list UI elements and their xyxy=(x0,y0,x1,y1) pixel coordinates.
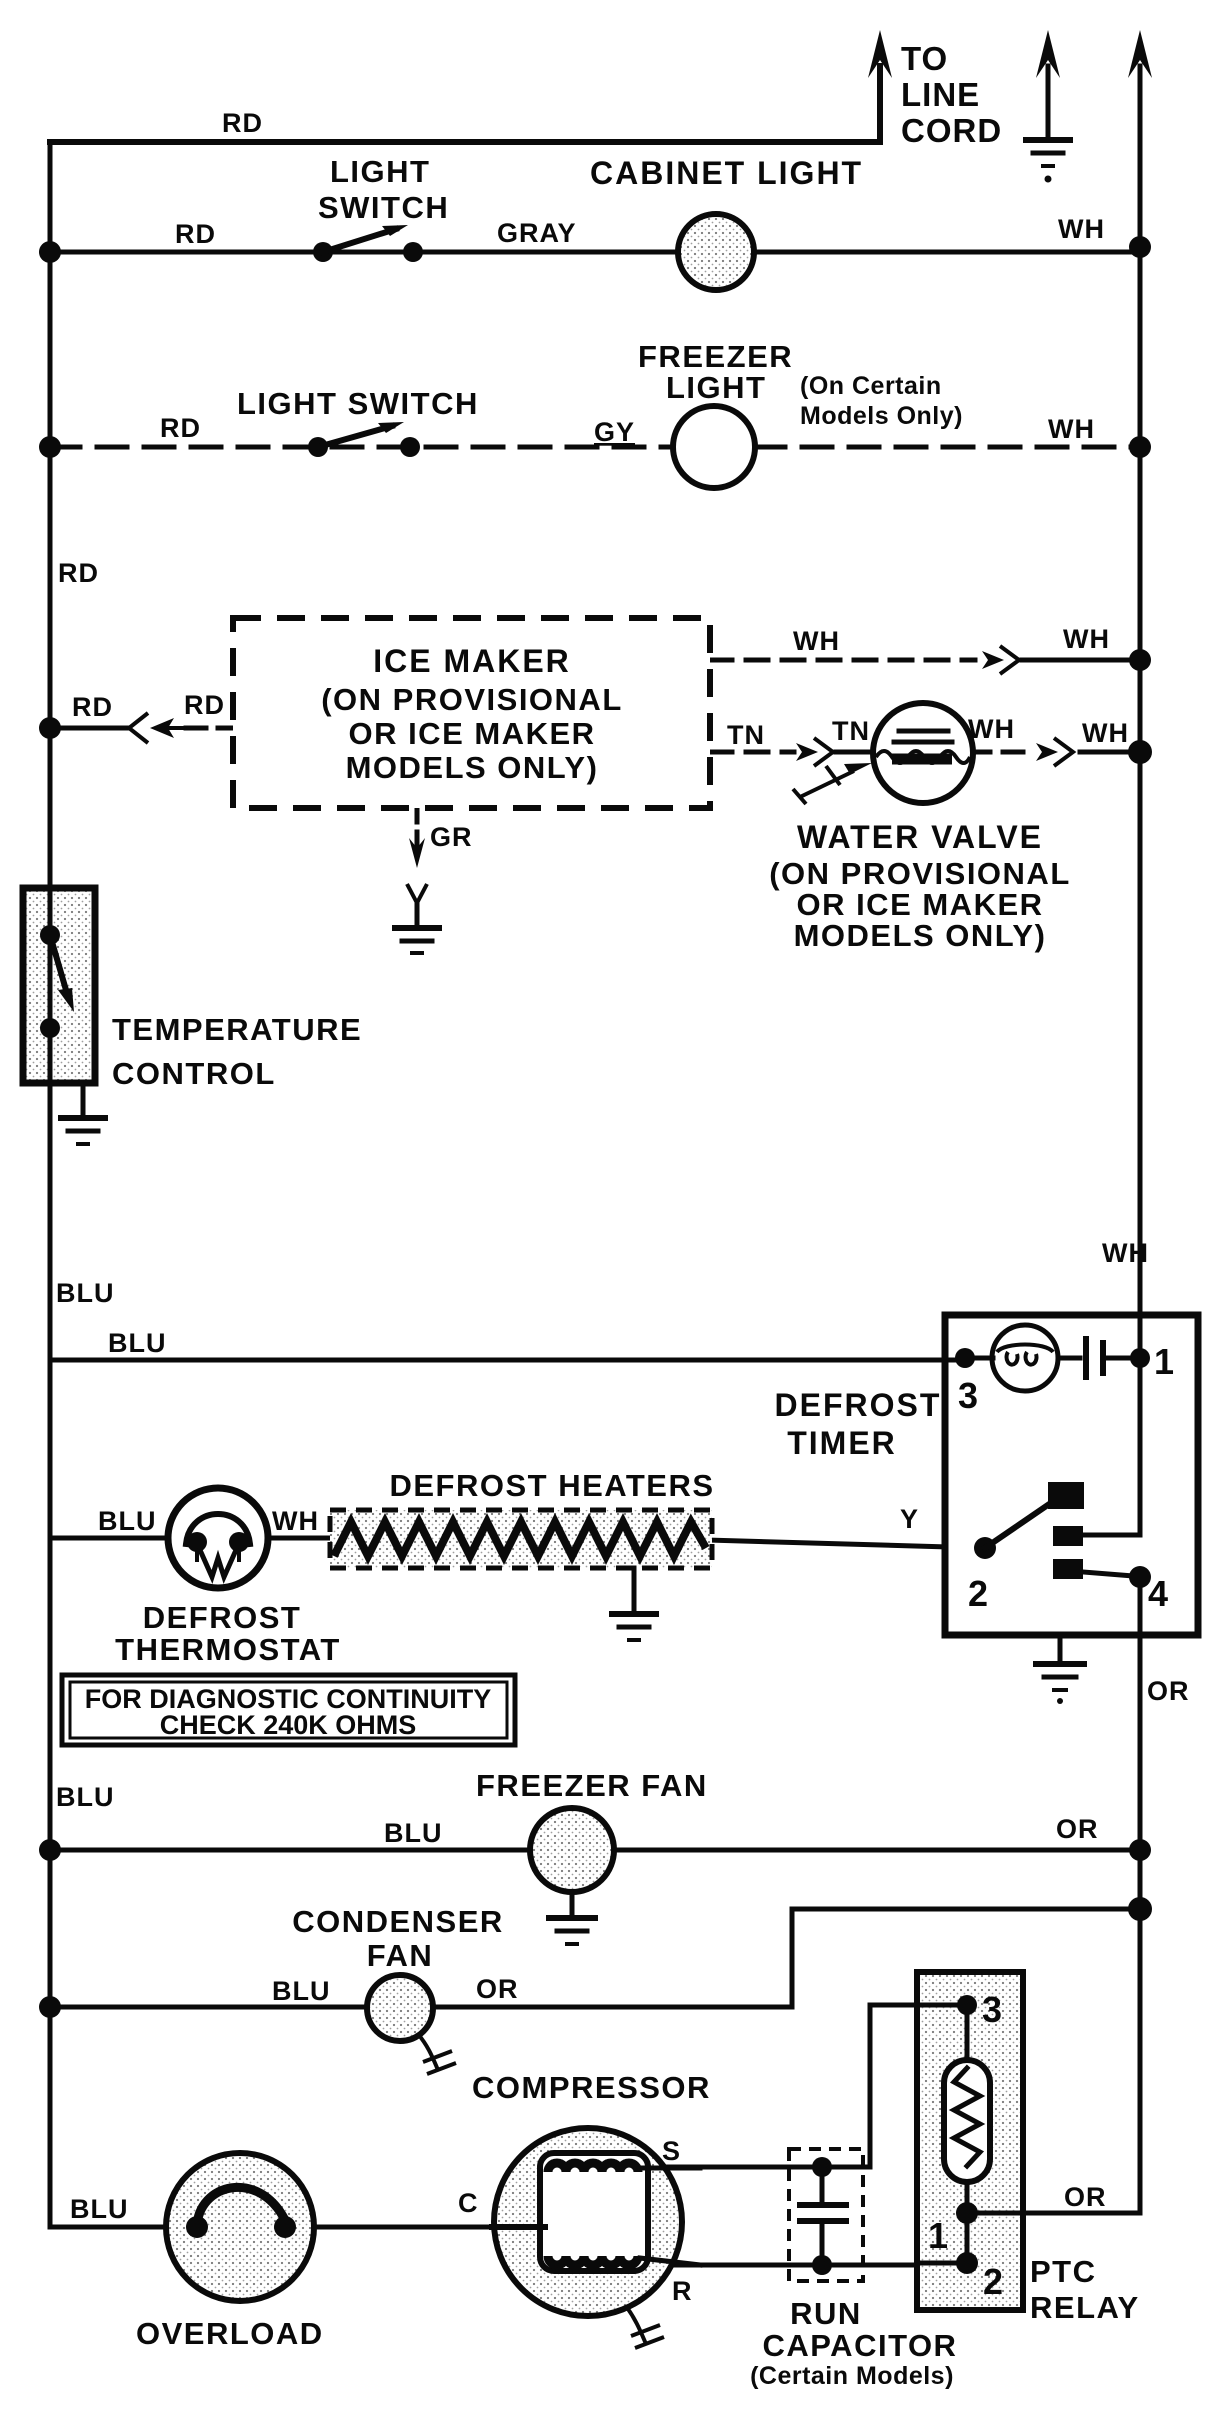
defrost-thermostat: BLU WH DEFROST THERMOSTAT xyxy=(98,1488,341,1667)
light-switch-label: LIGHT SWITCH xyxy=(237,386,479,421)
wiring-diagram-page: TO LINE CORD RD LIGHT SWITCH GRAY CABINE… xyxy=(0,0,1229,2417)
compressor: C S R COMPRESSOR xyxy=(458,2070,711,2348)
wire-label: RD xyxy=(222,108,263,138)
freezer-fan-motor xyxy=(530,1808,614,1892)
condenser-or-loop-wire xyxy=(420,1909,1140,2007)
defrost-thermostat-label: DEFROST xyxy=(143,1600,302,1635)
contact-pad xyxy=(1053,1559,1083,1579)
temperature-control-box xyxy=(23,888,95,1083)
wire-label: RD xyxy=(175,219,216,249)
wire-label: WH xyxy=(1082,718,1129,748)
refrigerator-wiring-diagram: TO LINE CORD RD LIGHT SWITCH GRAY CABINE… xyxy=(0,0,1229,2417)
defrost-timer: 3 1 2 4 DEFROST TIMER OR xyxy=(775,1315,1198,1706)
compressor-windings-frame xyxy=(540,2153,648,2271)
wire-label-left-rail: BLU xyxy=(56,1782,115,1812)
overload: OVERLOAD BLU xyxy=(70,2153,324,2351)
wire-label: BLU xyxy=(384,1818,443,1848)
wire-label: BLU xyxy=(70,2194,129,2224)
timer-terminal-label: 4 xyxy=(1148,1573,1168,1614)
ptc-terminal-1-dot xyxy=(956,2202,978,2224)
ptc-terminal-3-dot xyxy=(957,1995,977,2015)
wh-connector-icon xyxy=(1036,738,1073,766)
terminal-3-dot xyxy=(955,1348,975,1368)
ptc-terminal-label: 1 xyxy=(928,2215,948,2256)
temperature-control-label: TEMPERATURE xyxy=(112,1012,362,1047)
water-valve-label: WATER VALVE xyxy=(797,819,1043,855)
contact-pad xyxy=(1048,1482,1084,1509)
line-cord-arrows: TO LINE CORD xyxy=(868,30,1152,183)
compressor-label: COMPRESSOR xyxy=(472,2070,711,2105)
wire-label-left-rail: BLU xyxy=(56,1278,115,1308)
gr-ground-icon xyxy=(395,838,439,953)
freezer-light-note: Models Only) xyxy=(800,402,963,430)
wire-label: WH xyxy=(272,1506,319,1536)
freezer-light-label: LIGHT xyxy=(666,370,767,405)
water-valve: TN TN WH WH WATER VALVE (ON PROVISIONAL … xyxy=(727,703,1129,953)
ground-icon xyxy=(418,2034,456,2074)
overload-contact xyxy=(186,2216,208,2238)
junction-dot xyxy=(812,2255,832,2275)
valve-plug-connector-icon xyxy=(793,763,872,804)
ice-maker-label: OR ICE MAKER xyxy=(348,716,595,751)
ground-icon xyxy=(612,1568,656,1640)
terminal-1-dot xyxy=(1130,1348,1150,1368)
ground-icon xyxy=(626,2306,664,2348)
wire-label: BLU xyxy=(272,1976,331,2006)
contact-dot xyxy=(40,1018,60,1038)
wire-label: OR xyxy=(476,1974,519,2004)
wire-label: GY xyxy=(594,417,635,447)
condenser-fan-label: FAN xyxy=(367,1938,434,1973)
timer-terminal-label: 2 xyxy=(968,1573,988,1614)
ice-maker-label: MODELS ONLY) xyxy=(346,750,599,785)
to-line-cord-label: TO xyxy=(901,40,948,77)
run-capacitor-label: RUN xyxy=(790,2296,862,2331)
ptc-relay-label: PTC xyxy=(1030,2254,1097,2289)
wires xyxy=(50,66,1140,2265)
ice-maker-label: (ON PROVISIONAL xyxy=(321,682,623,717)
ground-icon xyxy=(549,1892,595,1944)
wire-label-right-rail: WH xyxy=(1102,1238,1149,1268)
wire-label: S xyxy=(662,2136,681,2166)
wire-label: WH xyxy=(1058,214,1105,244)
defrost-thermostat-label: THERMOSTAT xyxy=(115,1632,341,1667)
freezer-fan-label: FREEZER FAN xyxy=(476,1768,708,1803)
junction-dots xyxy=(39,236,1152,2018)
wire-label: GRAY xyxy=(497,218,577,248)
wire-label: BLU xyxy=(108,1328,167,1358)
light-switch-symbol xyxy=(308,422,420,457)
wh-connector-icon xyxy=(982,646,1019,674)
diagnostic-note: FOR DIAGNOSTIC CONTINUITY CHECK 240K OHM… xyxy=(62,1675,515,1745)
overload-contact xyxy=(274,2216,296,2238)
contact-pad xyxy=(1053,1526,1083,1546)
junction-dot xyxy=(812,2157,832,2177)
wire-label: GR xyxy=(430,822,473,852)
wire-label-left-rail: RD xyxy=(58,558,99,588)
overload-label: OVERLOAD xyxy=(136,2316,324,2351)
ptc-relay: 3 1 2 OR PTC RELAY xyxy=(917,1972,1140,2325)
ptc-terminal-2-dot xyxy=(956,2252,978,2274)
temperature-control-label: CONTROL xyxy=(112,1056,276,1091)
ground-icon xyxy=(1036,1635,1084,1704)
ptc-relay-label: RELAY xyxy=(1030,2290,1140,2325)
freezer-light-bulb xyxy=(673,406,755,488)
light-switch-label: SWITCH xyxy=(318,190,449,225)
defrost-timer-label: TIMER xyxy=(787,1425,897,1461)
wire-label: WH xyxy=(1063,624,1110,654)
defrost-heaters-label: DEFROST HEATERS xyxy=(389,1468,714,1503)
wire-label: TN xyxy=(727,720,765,750)
line-cord-ground-icon xyxy=(1026,140,1070,183)
temperature-control: TEMPERATURE CONTROL xyxy=(23,888,362,1144)
defrost-heaters: DEFROST HEATERS Y xyxy=(330,1468,919,1640)
ice-maker-label: ICE MAKER xyxy=(373,643,571,679)
wire-label: R xyxy=(672,2276,693,2306)
to-line-cord-label: LINE xyxy=(901,76,980,113)
wire-label: OR xyxy=(1056,1814,1099,1844)
diagnostic-note-text: CHECK 240K OHMS xyxy=(160,1710,417,1740)
condenser-fan-label: CONDENSER xyxy=(292,1904,504,1939)
cabinet-light-label: CABINET LIGHT xyxy=(590,155,863,191)
water-valve-label: (ON PROVISIONAL xyxy=(769,856,1071,891)
wire-label: C xyxy=(458,2188,479,2218)
wire-label: RD xyxy=(72,692,113,722)
wire-label: BLU xyxy=(98,1506,157,1536)
ptc-terminal-label: 3 xyxy=(982,1989,1002,2030)
cabinet-light-circuit: RD LIGHT SWITCH GRAY CABINET LIGHT WH xyxy=(175,154,1105,290)
run-capacitor-note: (Certain Models) xyxy=(750,2362,954,2390)
run-capacitor-label: CAPACITOR xyxy=(763,2328,958,2363)
freezer-light-label: FREEZER xyxy=(638,339,793,374)
defrost-timer-label: DEFROST xyxy=(775,1387,942,1423)
wire-label: WH xyxy=(1048,414,1095,444)
water-valve-label: OR ICE MAKER xyxy=(796,887,1043,922)
tn-connector-icon xyxy=(796,738,833,766)
water-valve-label: MODELS ONLY) xyxy=(794,918,1047,953)
freezer-light-circuit: RD LIGHT SWITCH GY FREEZER LIGHT (On Cer… xyxy=(160,339,1095,488)
cabinet-light-bulb xyxy=(678,214,754,290)
condenser-fan: CONDENSER FAN BLU OR xyxy=(272,1904,519,2074)
wire-label: RD xyxy=(184,690,225,720)
freezer-light-note: (On Certain xyxy=(800,372,942,400)
wire-label: Y xyxy=(900,1504,919,1534)
defrost-thermostat-body xyxy=(168,1488,268,1588)
wire-label: WH xyxy=(968,714,1015,744)
wire-label: RD xyxy=(160,413,201,443)
condenser-fan-motor xyxy=(367,1975,433,2041)
timer-terminal-label: 1 xyxy=(1154,1341,1174,1382)
light-switch-symbol xyxy=(313,225,423,262)
to-line-cord-label: CORD xyxy=(901,112,1002,149)
wire-label: OR xyxy=(1064,2182,1107,2212)
wire-label: WH xyxy=(793,626,840,656)
light-switch-label: LIGHT xyxy=(330,154,431,189)
rd-top-wire xyxy=(50,66,880,142)
timer-terminal-label: 3 xyxy=(958,1375,978,1416)
ptc-terminal-label: 2 xyxy=(983,2261,1003,2302)
rd-connector-icon xyxy=(129,713,186,743)
wire-label: OR xyxy=(1147,1676,1190,1706)
ground-icon xyxy=(61,1083,105,1144)
wire-label: TN xyxy=(832,716,870,746)
